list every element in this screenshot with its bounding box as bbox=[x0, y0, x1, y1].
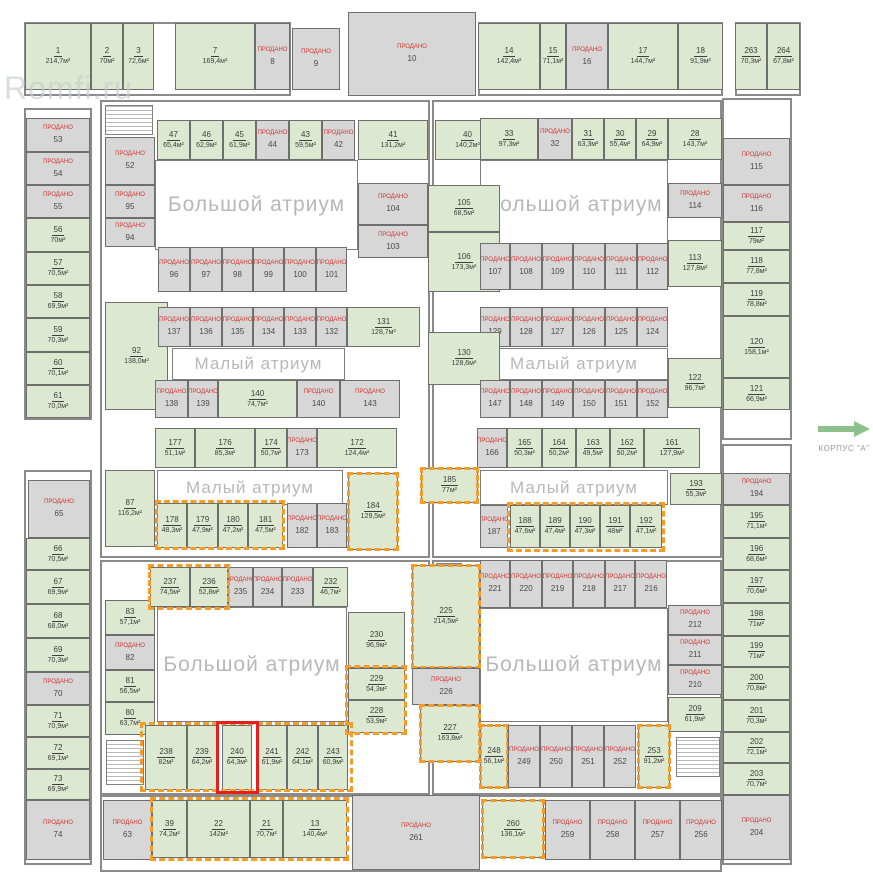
sold-label: ПРОДАНО bbox=[636, 574, 666, 581]
unit-140[interactable]: 14074,7м² bbox=[218, 380, 297, 418]
unit-area: 56,5м² bbox=[120, 687, 141, 696]
unit-area: 72,6м² bbox=[128, 57, 149, 66]
unit-97: ПРОДАНО97 bbox=[190, 247, 222, 292]
unit-200[interactable]: 20070,8м² bbox=[723, 667, 790, 700]
sold-label: ПРОДАНО bbox=[680, 640, 710, 647]
sold-label: ПРОДАНО bbox=[317, 516, 347, 523]
unit-number: 181 bbox=[257, 515, 274, 526]
unit-258: ПРОДАНО258 bbox=[590, 800, 635, 860]
unit-area: 70,8м² bbox=[746, 684, 767, 693]
sold-label: ПРОДАНО bbox=[680, 670, 710, 677]
unit-area: 61,9м² bbox=[262, 758, 283, 767]
unit-number: 57 bbox=[52, 258, 65, 269]
unit-number: 161 bbox=[663, 438, 680, 449]
unit-number: 113 bbox=[687, 253, 704, 264]
unit-220: ПРОДАНО220 bbox=[510, 560, 542, 608]
unit-120[interactable]: 120158,1м² bbox=[723, 316, 790, 378]
unit-number: 71 bbox=[52, 711, 65, 722]
unit-202[interactable]: 20272,1м² bbox=[723, 732, 790, 763]
unit-83[interactable]: 8357,1м² bbox=[105, 600, 155, 635]
unit-area: 143,7м² bbox=[683, 140, 708, 149]
unit-232[interactable]: 23246,7м² bbox=[313, 567, 348, 607]
unit-area: 68,6м² bbox=[746, 555, 767, 564]
unit-203[interactable]: 20370,7м² bbox=[723, 763, 790, 795]
unit-126: ПРОДАНО126 bbox=[573, 307, 605, 347]
sold-label: ПРОДАНО bbox=[355, 389, 385, 396]
unit-201[interactable]: 20170,3м² bbox=[723, 700, 790, 732]
unit-47[interactable]: 4765,4м² bbox=[157, 120, 190, 160]
unit-121[interactable]: 12166,9м² bbox=[723, 378, 790, 410]
unit-229[interactable]: 22954,3м² bbox=[348, 668, 405, 700]
unit-239[interactable]: 23964,2м² bbox=[187, 725, 217, 790]
unit-area: 70,3м² bbox=[48, 336, 69, 345]
unit-number: 216 bbox=[644, 584, 657, 594]
unit-99: ПРОДАНО99 bbox=[253, 247, 284, 292]
unit-number: 59 bbox=[52, 325, 65, 336]
unit-number: 68 bbox=[52, 611, 65, 622]
unit-56[interactable]: 5670м² bbox=[26, 218, 90, 252]
sold-label: ПРОДАНО bbox=[115, 643, 145, 650]
unit-area: 70,9м² bbox=[48, 722, 69, 731]
unit-number: 150 bbox=[582, 399, 595, 409]
unit-number: 140 bbox=[249, 389, 266, 400]
unit-number: 260 bbox=[504, 819, 521, 830]
unit-39[interactable]: 3974,2м² bbox=[152, 800, 187, 858]
sold-label: ПРОДАНО bbox=[115, 223, 145, 230]
sold-label: ПРОДАНО bbox=[742, 479, 772, 486]
sold-label: ПРОДАНО bbox=[223, 260, 253, 267]
unit-area: 169,4м² bbox=[203, 57, 228, 66]
unit-192[interactable]: 19247,1м² bbox=[630, 505, 662, 548]
unit-area: 124,4м² bbox=[345, 449, 370, 458]
unit-number: 225 bbox=[437, 606, 454, 617]
sold-label: ПРОДАНО bbox=[573, 747, 603, 754]
unit-225[interactable]: 225214,5м² bbox=[412, 565, 480, 668]
unit-number: 106 bbox=[455, 252, 472, 263]
unit-190[interactable]: 19047,3м² bbox=[570, 505, 600, 548]
unit-area: 64,9м² bbox=[642, 140, 663, 149]
unit-242[interactable]: 24264,1м² bbox=[287, 725, 318, 790]
unit-59[interactable]: 5970,3м² bbox=[26, 318, 90, 352]
unit-61[interactable]: 6170,0м² bbox=[26, 385, 90, 418]
unit-249: ПРОДАНО249 bbox=[508, 725, 540, 788]
unit-number: 97 bbox=[202, 270, 211, 280]
unit-243[interactable]: 24360,9м² bbox=[318, 725, 348, 790]
unit-number: 241 bbox=[263, 747, 280, 758]
unit-number: 100 bbox=[293, 270, 306, 280]
unit-number: 217 bbox=[613, 584, 626, 594]
unit-177[interactable]: 17751,1м² bbox=[155, 428, 195, 468]
unit-118[interactable]: 11877,8м² bbox=[723, 250, 790, 283]
unit-122[interactable]: 12296,7м² bbox=[668, 358, 722, 408]
atrium: Большой атриум bbox=[480, 608, 668, 722]
sold-label: ПРОДАНО bbox=[680, 191, 710, 198]
unit-area: 47,4м² bbox=[545, 527, 566, 536]
unit-number: 162 bbox=[618, 438, 635, 449]
unit-number: 250 bbox=[549, 757, 562, 767]
unit-228[interactable]: 22853,9м² bbox=[348, 700, 405, 733]
unit-181[interactable]: 18147,5м² bbox=[248, 503, 283, 548]
unit-number: 1 bbox=[54, 46, 62, 57]
unit-area: 127,9м² bbox=[660, 449, 685, 458]
unit-number: 112 bbox=[646, 267, 659, 277]
unit-114: ПРОДАНО114 bbox=[668, 183, 722, 218]
unit-area: 69,9м² bbox=[48, 588, 69, 597]
unit-area: 53,9м² bbox=[366, 717, 387, 726]
sold-label: ПРОДАНО bbox=[254, 260, 284, 267]
unit-area: 163,8м² bbox=[438, 734, 463, 743]
unit-182: ПРОДАНО182 bbox=[287, 503, 317, 548]
sold-label: ПРОДАНО bbox=[686, 820, 716, 827]
unit-number: 116 bbox=[750, 204, 763, 214]
unit-198[interactable]: 19871м² bbox=[723, 603, 790, 636]
sold-label: ПРОДАНО bbox=[157, 389, 187, 396]
unit-area: 69,1м² bbox=[48, 754, 69, 763]
atrium: Малый атриум bbox=[172, 348, 345, 380]
sold-label: ПРОДАНО bbox=[43, 192, 73, 199]
unit-53: ПРОДАНО53 bbox=[26, 118, 90, 152]
unit-21[interactable]: 2170,7м² bbox=[250, 800, 283, 858]
arrow-right-icon bbox=[818, 421, 870, 437]
unit-237[interactable]: 23774,5м² bbox=[150, 567, 190, 607]
unit-area: 96,9м² bbox=[366, 641, 387, 650]
unit-area: 70м² bbox=[51, 236, 66, 245]
unit-number: 130 bbox=[455, 348, 472, 359]
unit-number: 152 bbox=[646, 399, 659, 409]
unit-29[interactable]: 2964,9м² bbox=[636, 118, 668, 160]
unit-195[interactable]: 19571,1м² bbox=[723, 505, 790, 538]
unit-area: 173,3м² bbox=[452, 263, 477, 272]
unit-194: ПРОДАНО194 bbox=[723, 473, 790, 505]
unit-number: 110 bbox=[583, 267, 596, 277]
unit-number: 149 bbox=[551, 399, 564, 409]
unit-area: 127,8м² bbox=[683, 264, 708, 273]
unit-number: 124 bbox=[646, 327, 659, 337]
sold-label: ПРОДАНО bbox=[43, 159, 73, 166]
unit-251: ПРОДАНО251 bbox=[572, 725, 604, 788]
unit-number: 134 bbox=[262, 327, 275, 337]
unit-263[interactable]: 26370,3м² bbox=[735, 23, 767, 90]
unit-number: 211 bbox=[689, 650, 702, 660]
unit-172[interactable]: 172124,4м² bbox=[317, 428, 397, 468]
unit-number: 29 bbox=[646, 129, 659, 140]
unit-number: 109 bbox=[551, 267, 564, 277]
unit-number: 230 bbox=[368, 630, 385, 641]
sold-label: ПРОДАНО bbox=[43, 679, 73, 686]
unit-149: ПРОДАНО149 bbox=[542, 380, 573, 418]
unit-238[interactable]: 23882м² bbox=[145, 725, 187, 790]
unit-204: ПРОДАНО204 bbox=[723, 795, 790, 860]
unit-117[interactable]: 11779м² bbox=[723, 222, 790, 250]
unit-250: ПРОДАНО250 bbox=[540, 725, 572, 788]
unit-233: ПРОДАНО233 bbox=[282, 567, 313, 607]
unit-58[interactable]: 5869,9м² bbox=[26, 285, 90, 318]
sold-label: ПРОДАНО bbox=[397, 44, 427, 51]
unit-area: 64,1м² bbox=[292, 758, 313, 767]
unit-area: 48,3м² bbox=[162, 526, 183, 535]
unit-197[interactable]: 19770,6м² bbox=[723, 570, 790, 603]
unit-area: 116,2м² bbox=[118, 509, 142, 518]
unit-number: 70 bbox=[54, 689, 63, 699]
unit-33[interactable]: 3397,3м² bbox=[480, 118, 538, 160]
unit-number: 166 bbox=[485, 448, 498, 458]
sold-label: ПРОДАНО bbox=[285, 317, 315, 324]
unit-72[interactable]: 7269,1м² bbox=[26, 737, 90, 769]
unit-number: 143 bbox=[363, 399, 376, 409]
unit-number: 209 bbox=[686, 704, 703, 715]
unit-area: 91,2м² bbox=[644, 757, 665, 766]
unit-number: 132 bbox=[325, 327, 338, 337]
atrium: Малый атриум bbox=[157, 470, 343, 505]
unit-230[interactable]: 23096,9м² bbox=[348, 612, 405, 668]
sold-label: ПРОДАНО bbox=[511, 317, 541, 324]
unit-179[interactable]: 17947,9м² bbox=[187, 503, 218, 548]
unit-253[interactable]: 25391,2м² bbox=[638, 725, 670, 788]
unit-number: 221 bbox=[488, 584, 501, 594]
unit-number: 178 bbox=[163, 515, 180, 526]
unit-number: 74 bbox=[54, 830, 63, 840]
unit-248[interactable]: 24856,1м² bbox=[480, 725, 508, 788]
unit-43[interactable]: 4359,5м² bbox=[289, 120, 322, 160]
stairwell bbox=[106, 740, 144, 785]
unit-46[interactable]: 4662,9м² bbox=[190, 120, 223, 160]
unit-119[interactable]: 11978,8м² bbox=[723, 283, 790, 316]
unit-number: 128 bbox=[519, 327, 532, 337]
unit-219: ПРОДАНО219 bbox=[542, 560, 573, 608]
unit-number: 95 bbox=[126, 202, 135, 212]
unit-161[interactable]: 161127,9м² bbox=[644, 428, 700, 468]
unit-7[interactable]: 7169,4м² bbox=[175, 23, 255, 90]
unit-103: ПРОДАНО103 bbox=[358, 225, 428, 258]
unit-number: 248 bbox=[485, 746, 502, 757]
unit-185[interactable]: 18577м² bbox=[421, 468, 478, 503]
unit-13[interactable]: 13140,4м² bbox=[283, 800, 347, 858]
unit-257: ПРОДАНО257 bbox=[635, 800, 680, 860]
unit-178[interactable]: 17848,3м² bbox=[157, 503, 187, 548]
unit-139: ПРОДАНО139 bbox=[188, 380, 218, 418]
unit-196[interactable]: 19668,6м² bbox=[723, 538, 790, 570]
sold-label: ПРОДАНО bbox=[115, 151, 145, 158]
unit-area: 129,5м² bbox=[361, 512, 386, 521]
unit-area: 70,3м² bbox=[746, 717, 767, 726]
unit-number: 73 bbox=[52, 774, 65, 785]
sold-label: ПРОДАНО bbox=[574, 389, 604, 396]
unit-number: 190 bbox=[576, 516, 593, 527]
unit-191[interactable]: 19148м² bbox=[600, 505, 630, 548]
unit-189[interactable]: 18947,4м² bbox=[540, 505, 570, 548]
unit-8: ПРОДАНО8 bbox=[255, 23, 290, 90]
unit-number: 122 bbox=[686, 373, 703, 384]
unit-68[interactable]: 6868,0м² bbox=[26, 604, 90, 638]
unit-66[interactable]: 6670,5м² bbox=[26, 538, 90, 570]
unit-218: ПРОДАНО218 bbox=[573, 560, 605, 608]
unit-41[interactable]: 41131,2м² bbox=[358, 120, 428, 160]
unit-area: 52,8м² bbox=[199, 588, 220, 597]
unit-165[interactable]: 16550,3м² bbox=[507, 428, 542, 468]
unit-105[interactable]: 10568,5м² bbox=[428, 185, 500, 232]
unit-199[interactable]: 19971м² bbox=[723, 636, 790, 667]
unit-57[interactable]: 5770,5м² bbox=[26, 252, 90, 285]
unit-area: 128,6м² bbox=[452, 359, 477, 368]
unit-174[interactable]: 17450,7м² bbox=[255, 428, 287, 468]
unit-area: 74,7м² bbox=[247, 400, 268, 409]
sold-label: ПРОДАНО bbox=[317, 317, 347, 324]
unit-number: 43 bbox=[299, 130, 312, 141]
unit-number: 219 bbox=[551, 584, 564, 594]
unit-180[interactable]: 18047,2м² bbox=[218, 503, 248, 548]
unit-14[interactable]: 14142,4м² bbox=[478, 23, 540, 90]
unit-42: ПРОДАНО42 bbox=[322, 120, 355, 160]
unit-number: 52 bbox=[126, 161, 135, 171]
unit-133: ПРОДАНО133 bbox=[284, 307, 316, 347]
unit-number: 94 bbox=[126, 233, 135, 243]
sold-label: ПРОДАНО bbox=[304, 389, 334, 396]
unit-area: 71,1м² bbox=[746, 522, 767, 531]
sold-label: ПРОДАНО bbox=[480, 317, 510, 324]
stairwell bbox=[676, 737, 720, 777]
unit-number: 30 bbox=[614, 129, 627, 140]
unit-71[interactable]: 7170,9м² bbox=[26, 705, 90, 737]
unit-193[interactable]: 19355,3м² bbox=[670, 473, 722, 505]
sold-label: ПРОДАНО bbox=[159, 317, 189, 324]
unit-area: 68,5м² bbox=[454, 209, 475, 218]
unit-number: 193 bbox=[687, 479, 704, 490]
unit-area: 50,7м² bbox=[261, 449, 282, 458]
sold-label: ПРОДАНО bbox=[605, 747, 635, 754]
unit-147: ПРОДАНО147 bbox=[480, 380, 510, 418]
sold-label: ПРОДАНО bbox=[301, 49, 331, 56]
korpus-a-pointer: КОРПУС "А" bbox=[815, 421, 873, 453]
unit-241[interactable]: 24161,9м² bbox=[257, 725, 287, 790]
unit-number: 189 bbox=[546, 516, 563, 527]
unit-number: 261 bbox=[409, 833, 422, 843]
unit-number: 197 bbox=[748, 576, 765, 587]
atrium-label: Малый атриум bbox=[195, 354, 323, 374]
unit-area: 46,7м² bbox=[320, 588, 341, 597]
unit-area: 63,7м² bbox=[120, 719, 141, 728]
unit-number: 9 bbox=[314, 59, 318, 69]
unit-264[interactable]: 26467,8м² bbox=[767, 23, 800, 90]
sold-label: ПРОДАНО bbox=[43, 820, 73, 827]
unit-87[interactable]: 87116,2м² bbox=[105, 470, 155, 547]
unit-45[interactable]: 4561,9м² bbox=[223, 120, 256, 160]
sold-label: ПРОДАНО bbox=[638, 257, 668, 264]
unit-number: 183 bbox=[325, 526, 338, 536]
unit-173: ПРОДАНО173 bbox=[287, 428, 317, 468]
unit-area: 142,4м² bbox=[497, 57, 522, 66]
unit-81[interactable]: 8156,5м² bbox=[105, 670, 155, 702]
unit-number: 127 bbox=[551, 327, 564, 337]
unit-163[interactable]: 16349,5м² bbox=[576, 428, 610, 468]
unit-108: ПРОДАНО108 bbox=[510, 243, 542, 290]
unit-60[interactable]: 6070,1м² bbox=[26, 352, 90, 385]
unit-area: 47,2м² bbox=[223, 526, 244, 535]
sold-label: ПРОДАНО bbox=[742, 152, 772, 159]
unit-number: 126 bbox=[582, 327, 595, 337]
unit-number: 42 bbox=[334, 140, 343, 150]
unit-164[interactable]: 16450,2м² bbox=[542, 428, 576, 468]
unit-number: 133 bbox=[293, 327, 306, 337]
sold-label: ПРОДАНО bbox=[742, 818, 772, 825]
unit-227[interactable]: 227163,8м² bbox=[420, 705, 480, 762]
unit-15[interactable]: 1571,1м² bbox=[540, 23, 566, 90]
sold-label: ПРОДАНО bbox=[43, 125, 73, 132]
sold-label: ПРОДАНО bbox=[431, 677, 461, 684]
unit-area: 136,1м² bbox=[501, 830, 526, 839]
sold-label: ПРОДАНО bbox=[574, 574, 604, 581]
unit-number: 138 bbox=[165, 399, 178, 409]
unit-area: 77,8м² bbox=[746, 267, 767, 276]
unit-number: 82 bbox=[126, 653, 135, 663]
unit-252: ПРОДАНО252 bbox=[604, 725, 636, 788]
unit-area: 65,4м² bbox=[163, 141, 184, 150]
unit-128: ПРОДАНО128 bbox=[510, 307, 542, 347]
unit-131[interactable]: 131128,7м² bbox=[347, 307, 420, 347]
unit-number: 105 bbox=[455, 198, 472, 209]
unit-number: 251 bbox=[581, 757, 594, 767]
unit-number: 184 bbox=[364, 501, 381, 512]
unit-17[interactable]: 17144,7м² bbox=[608, 23, 678, 90]
unit-236[interactable]: 23652,8м² bbox=[190, 567, 228, 607]
unit-22[interactable]: 22142м² bbox=[187, 800, 250, 858]
unit-28[interactable]: 28143,7м² bbox=[668, 118, 722, 160]
unit-number: 236 bbox=[200, 577, 217, 588]
unit-number: 114 bbox=[689, 201, 702, 211]
unit-67[interactable]: 6769,9м² bbox=[26, 570, 90, 604]
unit-113[interactable]: 113127,8м² bbox=[668, 240, 722, 287]
unit-number: 17 bbox=[637, 46, 650, 57]
unit-number: 203 bbox=[748, 769, 765, 780]
unit-73[interactable]: 7369,9м² bbox=[26, 769, 90, 800]
atrium-label: Большой атриум bbox=[163, 653, 340, 677]
unit-260[interactable]: 260136,1м² bbox=[482, 800, 544, 858]
unit-number: 147 bbox=[488, 399, 501, 409]
unit-31[interactable]: 3163,3м² bbox=[572, 118, 604, 160]
unit-184[interactable]: 184129,5м² bbox=[348, 473, 398, 550]
sold-label: ПРОДАНО bbox=[285, 260, 315, 267]
unit-number: 218 bbox=[582, 584, 595, 594]
unit-number: 56 bbox=[52, 225, 65, 236]
unit-209[interactable]: 20961,9м² bbox=[668, 697, 722, 732]
unit-69[interactable]: 6970,3м² bbox=[26, 638, 90, 672]
unit-18[interactable]: 1891,9м² bbox=[678, 23, 723, 90]
unit-82: ПРОДАНО82 bbox=[105, 635, 155, 670]
unit-188[interactable]: 18847,6м² bbox=[510, 505, 540, 548]
unit-number: 10 bbox=[408, 54, 417, 64]
sold-label: ПРОДАНО bbox=[283, 577, 313, 584]
unit-number: 60 bbox=[52, 358, 65, 369]
unit-number: 137 bbox=[167, 327, 180, 337]
unit-234: ПРОДАНО234 bbox=[253, 567, 282, 607]
unit-226: ПРОДАНО226 bbox=[412, 668, 480, 705]
unit-30[interactable]: 3055,4м² bbox=[604, 118, 636, 160]
unit-240[interactable]: 24064,3м² bbox=[222, 725, 252, 790]
unit-number: 81 bbox=[124, 676, 137, 687]
unit-130[interactable]: 130128,6м² bbox=[428, 332, 500, 385]
sold-label: ПРОДАНО bbox=[228, 577, 253, 584]
unit-area: 72,1м² bbox=[746, 748, 767, 757]
sold-label: ПРОДАНО bbox=[543, 574, 573, 581]
sold-label: ПРОДАНО bbox=[598, 820, 628, 827]
unit-107: ПРОДАНО107 bbox=[480, 243, 510, 290]
unit-number: 107 bbox=[488, 267, 501, 277]
sold-label: ПРОДАНО bbox=[44, 499, 74, 506]
sold-label: ПРОДАНО bbox=[159, 260, 189, 267]
unit-number: 234 bbox=[261, 587, 274, 597]
sold-label: ПРОДАНО bbox=[480, 574, 510, 581]
unit-162[interactable]: 16250,2м² bbox=[610, 428, 644, 468]
unit-176[interactable]: 17685,3м² bbox=[195, 428, 255, 468]
